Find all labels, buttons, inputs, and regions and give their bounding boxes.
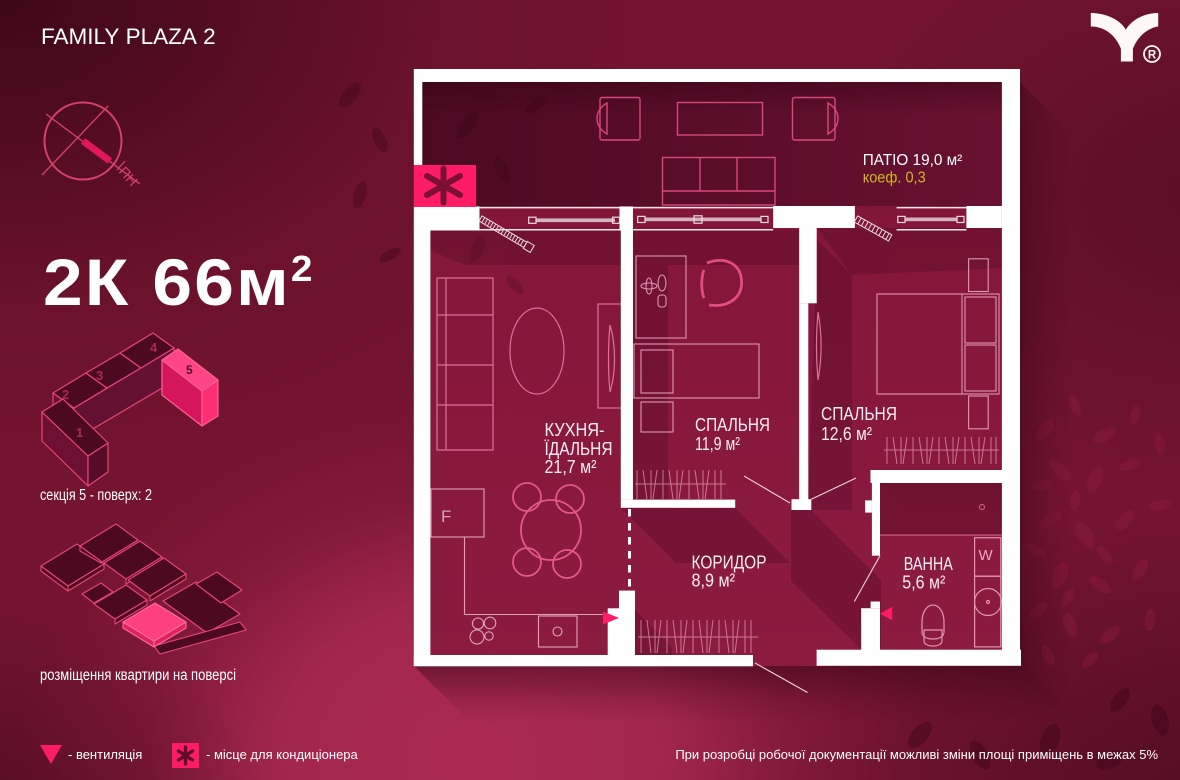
svg-text:11,9 м²: 11,9 м² bbox=[695, 433, 740, 454]
svg-text:F: F bbox=[441, 507, 451, 526]
svg-text:коеф. 0,3: коеф. 0,3 bbox=[863, 170, 926, 187]
svg-text:КУХНЯ-: КУХНЯ- bbox=[545, 419, 605, 440]
svg-text:СПАЛЬНЯ: СПАЛЬНЯ bbox=[695, 414, 770, 435]
svg-text:ПАТІО 19,0 м²: ПАТІО 19,0 м² bbox=[863, 152, 963, 169]
svg-text:21,7 м²: 21,7 м² bbox=[545, 456, 597, 477]
svg-text:8,9 м²: 8,9 м² bbox=[692, 570, 736, 591]
svg-text:W: W bbox=[979, 547, 994, 564]
svg-text:12,6 м²: 12,6 м² bbox=[821, 423, 872, 444]
svg-text:СПАЛЬНЯ: СПАЛЬНЯ bbox=[821, 403, 897, 424]
svg-text:5,6 м²: 5,6 м² bbox=[902, 572, 945, 593]
